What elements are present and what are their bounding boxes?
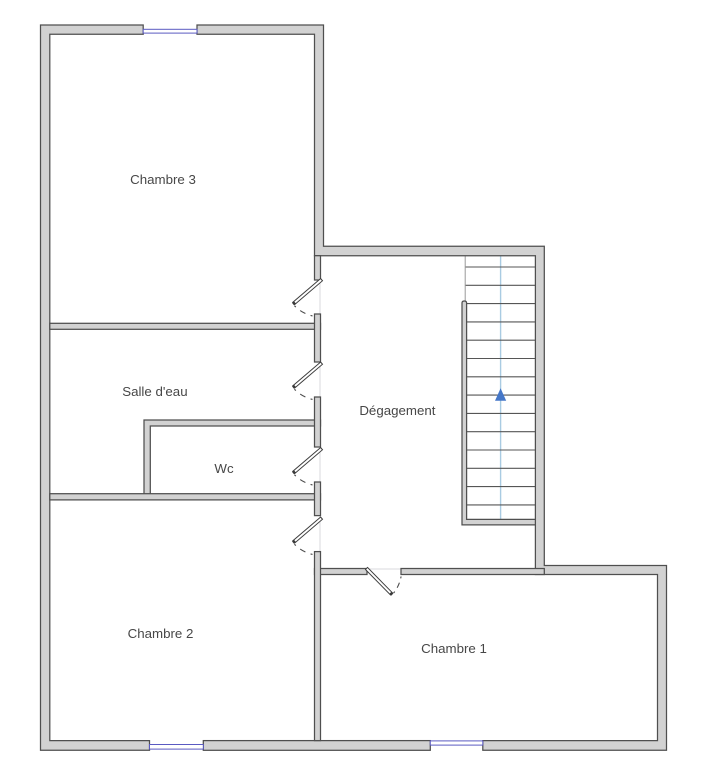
- svg-text:Chambre 1: Chambre 1: [421, 641, 487, 656]
- svg-text:Chambre 3: Chambre 3: [130, 172, 196, 187]
- svg-text:Salle d'eau: Salle d'eau: [122, 384, 187, 399]
- svg-text:Chambre 2: Chambre 2: [128, 626, 194, 641]
- svg-text:Wc: Wc: [214, 461, 234, 476]
- svg-text:Dégagement: Dégagement: [359, 403, 435, 418]
